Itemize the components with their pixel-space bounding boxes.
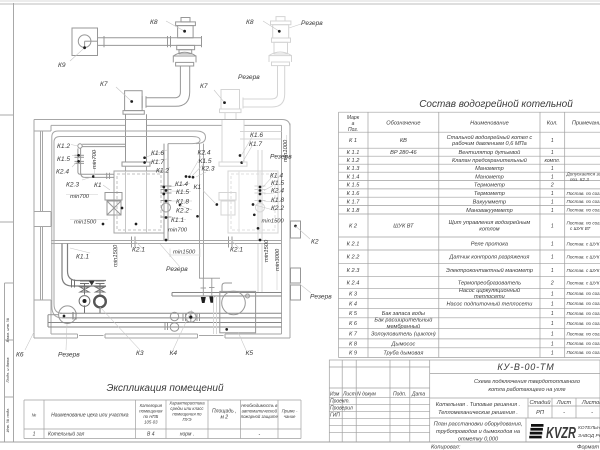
svg-text:К 2.2: К 2.2 bbox=[347, 255, 361, 261]
svg-text:К2.4: К2.4 bbox=[198, 150, 211, 157]
svg-text:теплосети: теплосети bbox=[474, 294, 505, 300]
svg-text:Подп. и дата: Подп. и дата bbox=[5, 357, 10, 383]
svg-text:1: 1 bbox=[551, 321, 554, 327]
svg-text:1: 1 bbox=[551, 291, 554, 297]
svg-text:Поз.: Поз. bbox=[348, 127, 358, 133]
svg-text:рабочим давлением 0,6 МПа: рабочим давлением 0,6 МПа bbox=[451, 141, 527, 147]
svg-text:Постав. по согла: Постав. по согла bbox=[567, 321, 600, 326]
svg-text:Лист: Лист bbox=[556, 400, 572, 406]
svg-text:К7: К7 bbox=[200, 83, 208, 90]
svg-text:Термопреобразователь: Термопреобразователь bbox=[458, 281, 521, 287]
svg-text:К8: К8 bbox=[150, 19, 158, 26]
svg-text:1: 1 bbox=[551, 191, 554, 197]
svg-text:пожарной защите: пожарной защите bbox=[241, 414, 279, 419]
svg-text:Постав. по согла: Постав. по согла bbox=[567, 350, 600, 355]
svg-text:Постав. по согла: Постав. по согла bbox=[567, 331, 600, 336]
svg-text:min1000: min1000 bbox=[283, 139, 289, 162]
svg-text:по НПБ: по НПБ bbox=[143, 414, 158, 419]
svg-text:Постав. по согла: Постав. по согла bbox=[567, 301, 600, 306]
svg-text:min1500: min1500 bbox=[264, 239, 270, 262]
svg-text:К2.1: К2.1 bbox=[230, 247, 243, 254]
svg-text:помещения: помещения bbox=[139, 409, 163, 414]
svg-text:К6: К6 bbox=[16, 352, 24, 359]
svg-text:К 1.1: К 1.1 bbox=[347, 150, 360, 156]
svg-text:К5: К5 bbox=[246, 350, 254, 357]
svg-text:min700: min700 bbox=[92, 149, 98, 169]
svg-text:Манометр: Манометр bbox=[475, 174, 504, 180]
svg-text:1: 1 bbox=[551, 332, 554, 338]
svg-text:К9: К9 bbox=[58, 62, 66, 69]
svg-text:КОТЕЛЬНЫЙ: КОТЕЛЬНЫЙ bbox=[578, 423, 600, 431]
svg-text:РП: РП bbox=[536, 410, 545, 416]
svg-text:Проверил: Проверил bbox=[330, 406, 353, 412]
svg-text:min1500: min1500 bbox=[113, 244, 119, 267]
svg-text:поз. К2.3: поз. К2.3 bbox=[570, 177, 589, 182]
svg-text:автоматической: автоматической bbox=[242, 409, 278, 414]
svg-text:min700: min700 bbox=[70, 194, 90, 200]
svg-text:Резерв: Резерв bbox=[238, 74, 260, 81]
svg-text:Постав. по согла: Постав. по согла bbox=[567, 199, 600, 204]
svg-text:Экспликация помещений: Экспликация помещений bbox=[106, 383, 224, 394]
svg-text:Термометр: Термометр bbox=[474, 183, 505, 189]
svg-text:ШУК ВТ: ШУК ВТ bbox=[393, 224, 414, 230]
svg-text:min1500: min1500 bbox=[173, 250, 196, 256]
svg-text:К2.4: К2.4 bbox=[56, 169, 69, 176]
svg-text:Термометр: Термометр bbox=[474, 191, 505, 197]
svg-text:Котельный зал: Котельный зал bbox=[48, 431, 85, 438]
svg-text:План расстановки оборудования,: План расстановки оборудования, bbox=[434, 422, 523, 428]
svg-text:К 7: К 7 bbox=[349, 332, 358, 338]
svg-text:1: 1 bbox=[551, 242, 554, 248]
svg-text:Датчик контроля разряжения: Датчик контроля разряжения bbox=[448, 255, 529, 261]
svg-text:Лист: Лист bbox=[342, 392, 356, 398]
svg-text:компл.: компл. bbox=[545, 158, 561, 164]
svg-text:К2.2: К2.2 bbox=[271, 205, 284, 212]
svg-text:1: 1 bbox=[551, 350, 554, 356]
svg-text:Постав. с ШУК: Постав. с ШУК bbox=[567, 280, 600, 285]
svg-text:KVZR: KVZR bbox=[546, 425, 577, 442]
svg-text:Листов: Листов bbox=[581, 400, 600, 406]
svg-text:Постав. по согла: Постав. по согла bbox=[567, 221, 600, 226]
svg-text:К1.5: К1.5 bbox=[199, 158, 212, 165]
svg-text:К 1: К 1 bbox=[349, 138, 357, 144]
svg-text:№: № bbox=[32, 413, 37, 418]
svg-text:К 1.2: К 1.2 bbox=[347, 158, 361, 164]
svg-text:Постав. по согла: Постав. по согла bbox=[567, 341, 600, 346]
svg-text:Реле протока: Реле протока bbox=[471, 242, 508, 248]
svg-text:К 1.3: К 1.3 bbox=[347, 166, 361, 172]
svg-text:Формат: Формат bbox=[577, 445, 600, 450]
svg-text:Постав. по согла: Постав. по согла bbox=[567, 291, 600, 296]
svg-text:К1: К1 bbox=[94, 182, 102, 189]
svg-text:Категория: Категория bbox=[140, 403, 163, 408]
svg-text:Проект.: Проект. bbox=[330, 399, 350, 405]
svg-text:К1.1: К1.1 bbox=[76, 254, 89, 261]
svg-text:с ШУК ВТ: с ШУК ВТ bbox=[570, 226, 591, 231]
svg-text:К1.5: К1.5 bbox=[57, 156, 70, 163]
svg-text:Резерв: Резерв bbox=[58, 352, 80, 359]
svg-text:среды или класс: среды или класс bbox=[170, 406, 204, 411]
svg-text:-: - bbox=[563, 410, 565, 416]
svg-text:К2.1: К2.1 bbox=[132, 247, 145, 254]
svg-text:Постав. по согла: Постав. по согла bbox=[567, 208, 600, 213]
svg-text:Взам. инв. №: Взам. инв. № bbox=[5, 317, 10, 342]
svg-text:К 1.4: К 1.4 bbox=[347, 174, 360, 180]
svg-text:К7: К7 bbox=[100, 81, 108, 88]
svg-text:Мановакуумметр: Мановакуумметр bbox=[466, 208, 513, 214]
svg-text:Необходимость в: Необходимость в bbox=[241, 403, 278, 408]
svg-text:К 5: К 5 bbox=[349, 311, 358, 317]
svg-text:Стадий: Стадий bbox=[529, 399, 550, 406]
svg-text:К 2: К 2 bbox=[349, 224, 358, 230]
svg-text:К1.4: К1.4 bbox=[270, 173, 283, 180]
svg-text:1: 1 bbox=[551, 166, 554, 172]
svg-text:1: 1 bbox=[551, 311, 554, 317]
svg-text:К1.6: К1.6 bbox=[250, 132, 263, 139]
svg-text:Дымосос: Дымосос bbox=[391, 341, 416, 347]
svg-text:N докум: N докум bbox=[357, 392, 376, 398]
svg-text:ГИП: ГИП bbox=[330, 413, 340, 419]
svg-text:1: 1 bbox=[551, 208, 554, 214]
svg-text:Наименование: Наименование bbox=[470, 121, 509, 127]
svg-text:min700: min700 bbox=[168, 228, 188, 234]
svg-text:трубопроводов и дымоходов на: трубопроводов и дымоходов на bbox=[436, 429, 520, 435]
svg-text:1: 1 bbox=[551, 255, 554, 261]
svg-text:Клапан предохранительный: Клапан предохранительный bbox=[452, 157, 527, 164]
svg-text:К1.5: К1.5 bbox=[176, 189, 189, 196]
svg-text:2: 2 bbox=[550, 183, 554, 189]
svg-text:К1.4: К1.4 bbox=[175, 181, 188, 188]
svg-text:отметку 0,000: отметку 0,000 bbox=[458, 437, 499, 443]
svg-text:105-03: 105-03 bbox=[144, 420, 158, 425]
svg-text:К 3: К 3 bbox=[349, 291, 358, 297]
svg-text:Дата: Дата bbox=[411, 392, 425, 398]
svg-text:К1.2: К1.2 bbox=[57, 143, 70, 150]
svg-text:1: 1 bbox=[551, 224, 554, 230]
svg-text:min1500: min1500 bbox=[262, 218, 285, 224]
svg-text:Допускается зам: Допускается зам bbox=[566, 171, 600, 176]
svg-text:1: 1 bbox=[33, 432, 36, 438]
svg-text:1: 1 bbox=[551, 150, 554, 156]
svg-text:К 1.6: К 1.6 bbox=[347, 191, 361, 197]
svg-text:min1500: min1500 bbox=[74, 220, 97, 226]
svg-text:Подп.: Подп. bbox=[393, 392, 406, 398]
svg-text:К8: К8 bbox=[246, 19, 254, 26]
svg-text:К2.3: К2.3 bbox=[202, 166, 215, 173]
svg-text:К 6: К 6 bbox=[349, 321, 358, 327]
svg-text:ПУЭ: ПУЭ bbox=[183, 417, 192, 422]
svg-text:К1.7: К1.7 bbox=[249, 141, 262, 148]
svg-text:Бак расширительный: Бак расширительный bbox=[374, 317, 432, 324]
svg-text:Стальной водогрейный котел с: Стальной водогрейный котел с bbox=[447, 134, 533, 141]
svg-text:Труба дымовая: Труба дымовая bbox=[383, 350, 423, 356]
svg-text:К4: К4 bbox=[170, 350, 178, 357]
svg-text:К 8: К 8 bbox=[349, 341, 358, 347]
svg-text:К 1.7: К 1.7 bbox=[347, 199, 361, 205]
svg-text:Постав. по согла: Постав. по согла bbox=[567, 191, 600, 196]
svg-text:Щит управления водогрейным: Щит управления водогрейным bbox=[449, 219, 531, 226]
svg-text:Насос подпиточный теплосети: Насос подпиточный теплосети bbox=[446, 300, 532, 307]
svg-text:К 4: К 4 bbox=[349, 301, 357, 307]
svg-text:К 9: К 9 bbox=[349, 350, 357, 356]
svg-text:К1.8: К1.8 bbox=[271, 197, 284, 204]
svg-text:-: - bbox=[591, 410, 593, 416]
svg-text:Наименование цеха или участка: Наименование цеха или участка bbox=[51, 413, 129, 419]
svg-text:Бак запаса воды: Бак запаса воды bbox=[382, 311, 425, 317]
svg-text:1: 1 bbox=[551, 341, 554, 347]
svg-text:К1.1: К1.1 bbox=[171, 217, 184, 224]
svg-text:К 2.3: К 2.3 bbox=[347, 268, 361, 274]
svg-text:1: 1 bbox=[551, 301, 554, 307]
svg-text:К 2.1: К 2.1 bbox=[347, 242, 360, 248]
svg-text:Резерв: Резерв bbox=[166, 266, 188, 273]
svg-text:Копировал:: Копировал: bbox=[431, 445, 461, 450]
svg-text:К1.6: К1.6 bbox=[151, 150, 164, 157]
svg-text:2: 2 bbox=[550, 281, 554, 287]
svg-text:К1.7: К1.7 bbox=[151, 159, 164, 166]
svg-text:Резерв: Резерв bbox=[301, 20, 323, 27]
svg-text:Приме -: Приме - bbox=[282, 409, 298, 414]
svg-text:Схема подключения твердотоплив: Схема подключения твердотопливного bbox=[474, 379, 580, 385]
svg-text:норм .: норм . bbox=[180, 432, 194, 438]
svg-text:КВ: КВ bbox=[400, 138, 407, 144]
svg-text:1: 1 bbox=[551, 199, 554, 205]
svg-text:помещения по: помещения по bbox=[172, 412, 202, 417]
svg-text:1: 1 bbox=[551, 268, 554, 274]
svg-text:Насос циркуляционный: Насос циркуляционный bbox=[459, 287, 520, 294]
svg-text:Постав. по согла: Постав. по согла bbox=[567, 311, 600, 316]
svg-text:Примечание: Примечание bbox=[572, 121, 600, 127]
svg-text:К2.4: К2.4 bbox=[271, 188, 284, 195]
svg-text:-: - bbox=[258, 432, 260, 438]
svg-text:min3000: min3000 bbox=[275, 248, 281, 271]
svg-text:Тепломеханические решения .: Тепломеханические решения . bbox=[438, 410, 518, 416]
svg-text:К1.8: К1.8 bbox=[176, 199, 189, 206]
svg-text:чание: чание bbox=[284, 414, 296, 419]
svg-text:котлом: котлом bbox=[479, 226, 500, 232]
svg-text:мембранный: мембранный bbox=[387, 323, 420, 330]
svg-text:КУ-В-00-ТМ: КУ-В-00-ТМ bbox=[497, 362, 554, 372]
svg-text:В 4: В 4 bbox=[147, 432, 155, 438]
svg-text:К2: К2 bbox=[311, 239, 319, 246]
svg-text:К 1.5: К 1.5 bbox=[347, 183, 361, 189]
svg-text:К1.2: К1.2 bbox=[156, 168, 169, 175]
svg-text:Характеристика: Характеристика bbox=[168, 401, 205, 406]
svg-text:К3: К3 bbox=[136, 350, 144, 357]
svg-text:К1.5: К1.5 bbox=[271, 180, 284, 187]
svg-text:К 2.4: К 2.4 bbox=[347, 281, 360, 287]
svg-text:Манометр: Манометр bbox=[475, 166, 504, 172]
svg-text:К2.3: К2.3 bbox=[66, 182, 79, 189]
svg-text:К2.2: К2.2 bbox=[176, 208, 189, 215]
svg-text:ЗАВОД РОССИИ: ЗАВОД РОССИИ bbox=[578, 433, 600, 439]
svg-text:Золоуловитель (циклон): Золоуловитель (циклон) bbox=[371, 332, 436, 338]
svg-text:Состав водогрейной котельной: Состав водогрейной котельной bbox=[419, 99, 573, 110]
svg-text:Постав. с ШУК: Постав. с ШУК bbox=[567, 254, 600, 259]
svg-text:Вентилятор дутьевой: Вентилятор дутьевой bbox=[459, 149, 521, 156]
svg-text:К1: К1 bbox=[194, 184, 202, 191]
svg-text:К 1.8: К 1.8 bbox=[347, 208, 361, 214]
svg-text:Изм: Изм bbox=[330, 392, 340, 398]
svg-text:Котельная . Типовые решения .: Котельная . Типовые решения . bbox=[436, 402, 520, 408]
svg-text:Постав. с ШУК: Постав. с ШУК bbox=[567, 241, 600, 246]
svg-text:Инв. № подл.: Инв. № подл. bbox=[5, 408, 10, 433]
svg-text:м 2: м 2 bbox=[220, 415, 228, 421]
svg-text:котла работающего на угле: котла работающего на угле bbox=[488, 387, 565, 393]
svg-text:Вакуумметр: Вакуумметр bbox=[473, 199, 507, 205]
svg-text:Постав. с ШУК: Постав. с ШУК bbox=[567, 268, 600, 273]
svg-text:1: 1 bbox=[551, 174, 554, 180]
svg-text:Электроконтактный манометр: Электроконтактный манометр bbox=[446, 267, 533, 274]
svg-text:1: 1 bbox=[551, 138, 554, 144]
svg-text:Кол.: Кол. bbox=[547, 121, 558, 127]
svg-text:Обозначение: Обозначение bbox=[386, 121, 420, 127]
svg-text:Резерв: Резерв bbox=[310, 294, 332, 301]
svg-text:ВР 280-46: ВР 280-46 bbox=[390, 150, 417, 156]
